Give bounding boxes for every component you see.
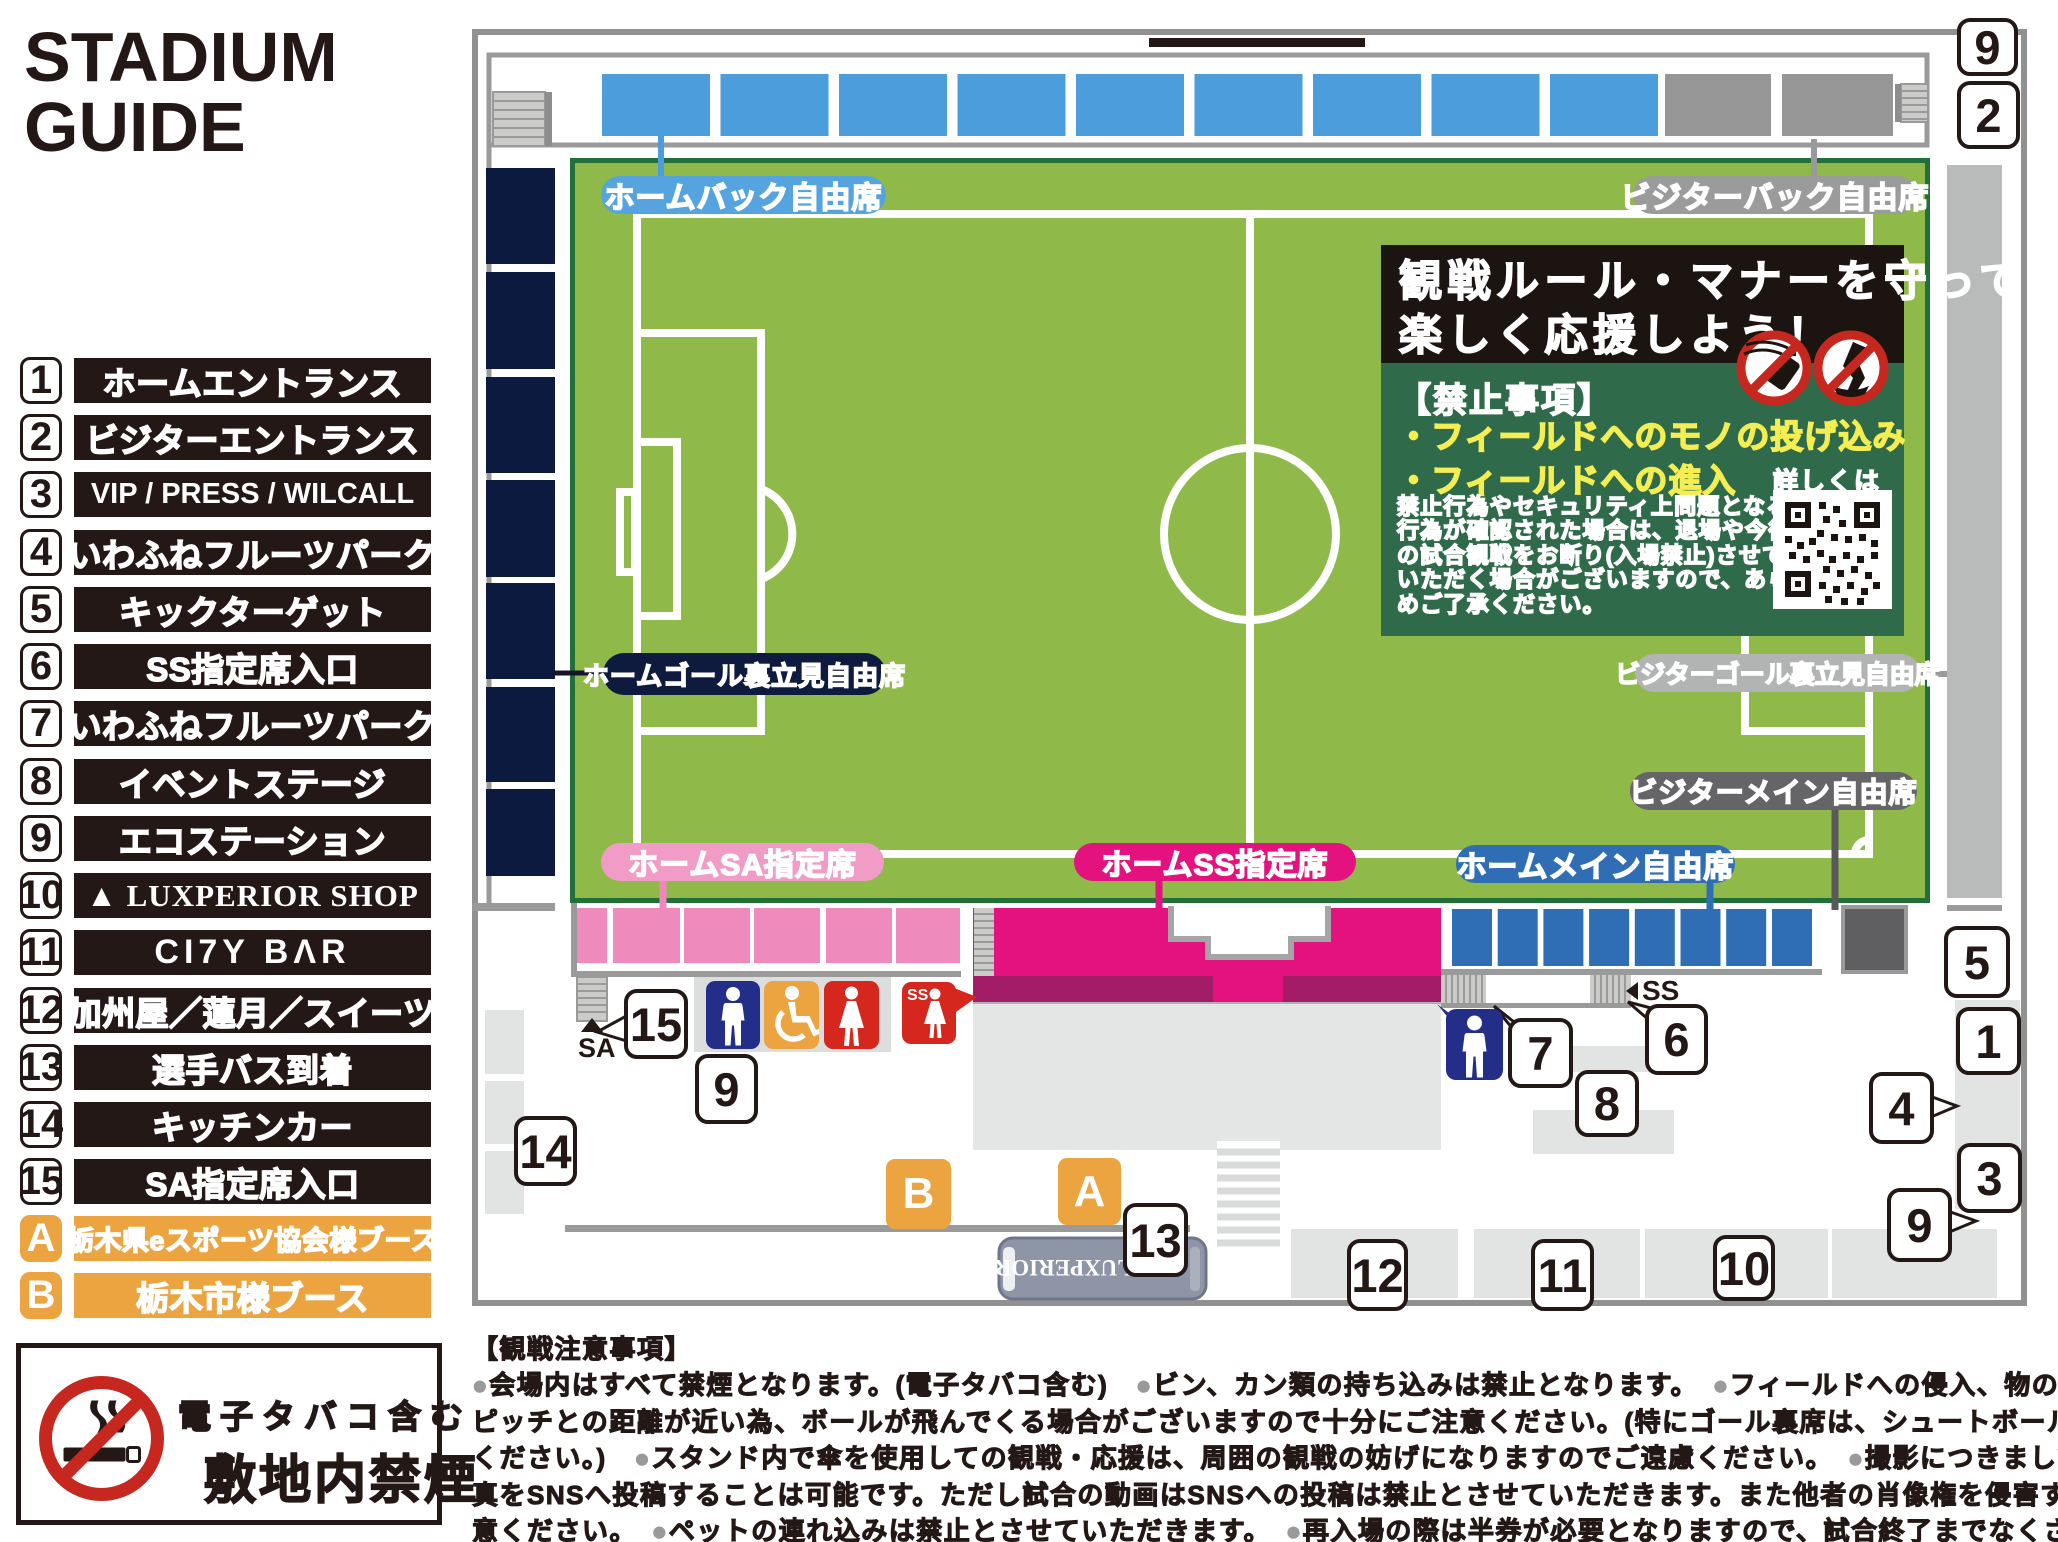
svg-text:SS: SS bbox=[907, 987, 929, 1004]
